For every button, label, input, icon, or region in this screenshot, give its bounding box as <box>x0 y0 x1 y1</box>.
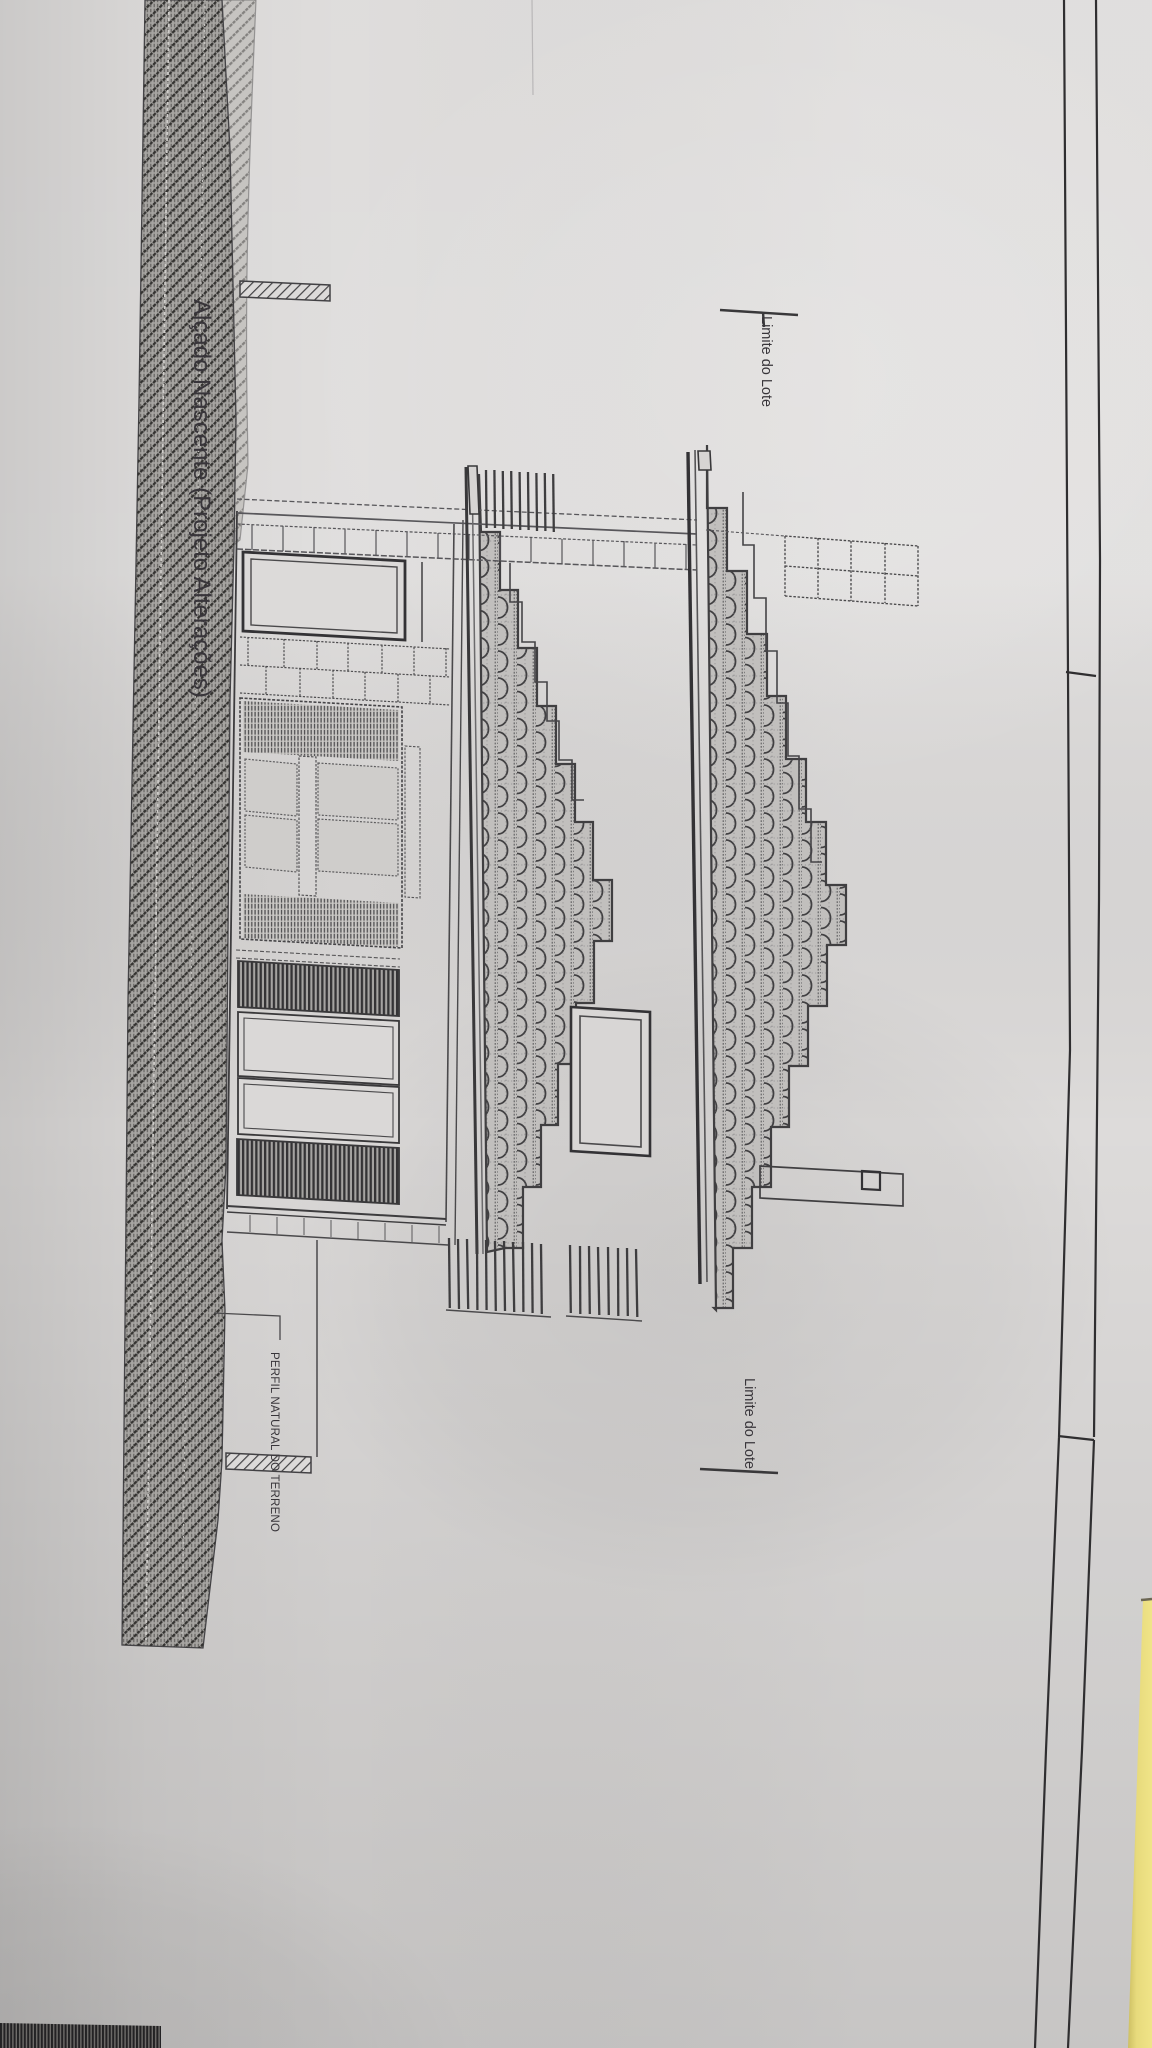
svg-text:Limite do Lote: Limite do Lote <box>741 1378 757 1469</box>
svg-text:PERFIL NATURAL DO TERRENO: PERFIL NATURAL DO TERRENO <box>268 1352 280 1532</box>
svg-text:Limite do Lote: Limite do Lote <box>758 316 774 407</box>
svg-text:Alçado Nascente (Projeto Alter: Alçado Nascente (Projeto Alterações) <box>188 299 215 698</box>
